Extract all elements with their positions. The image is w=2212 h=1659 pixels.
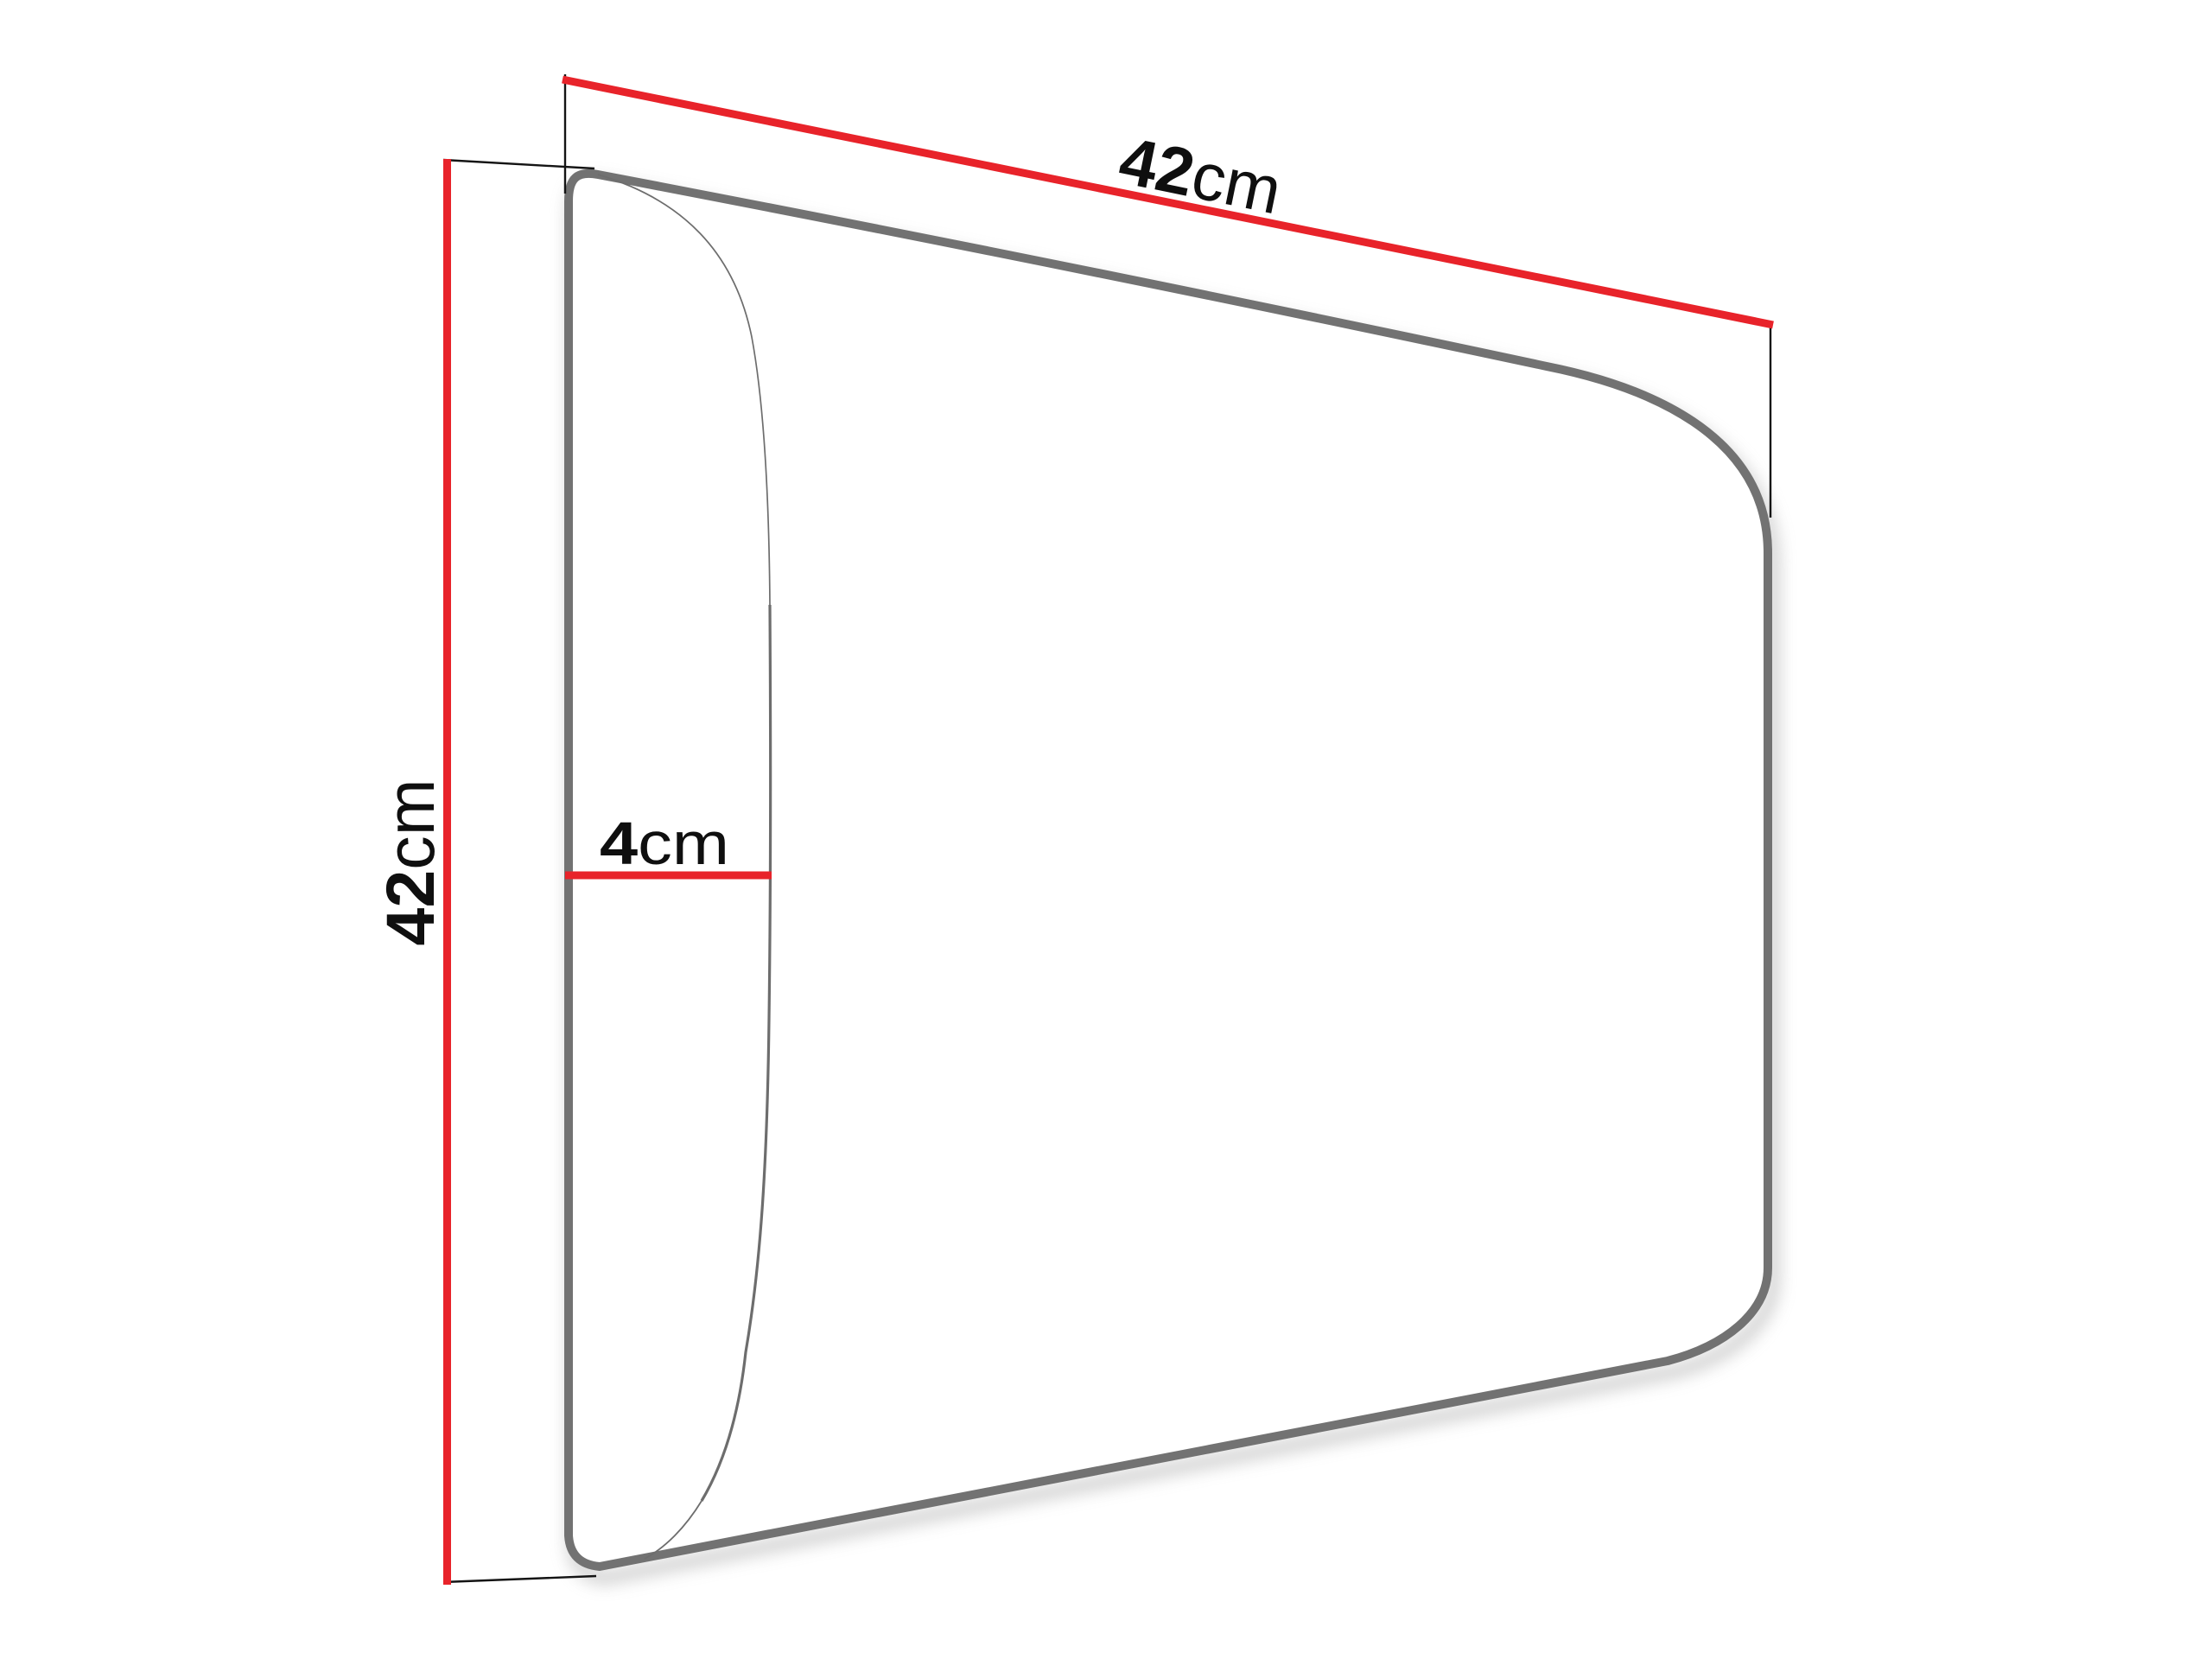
svg-text:4cm: 4cm	[600, 810, 729, 877]
svg-text:42cm: 42cm	[372, 779, 448, 945]
